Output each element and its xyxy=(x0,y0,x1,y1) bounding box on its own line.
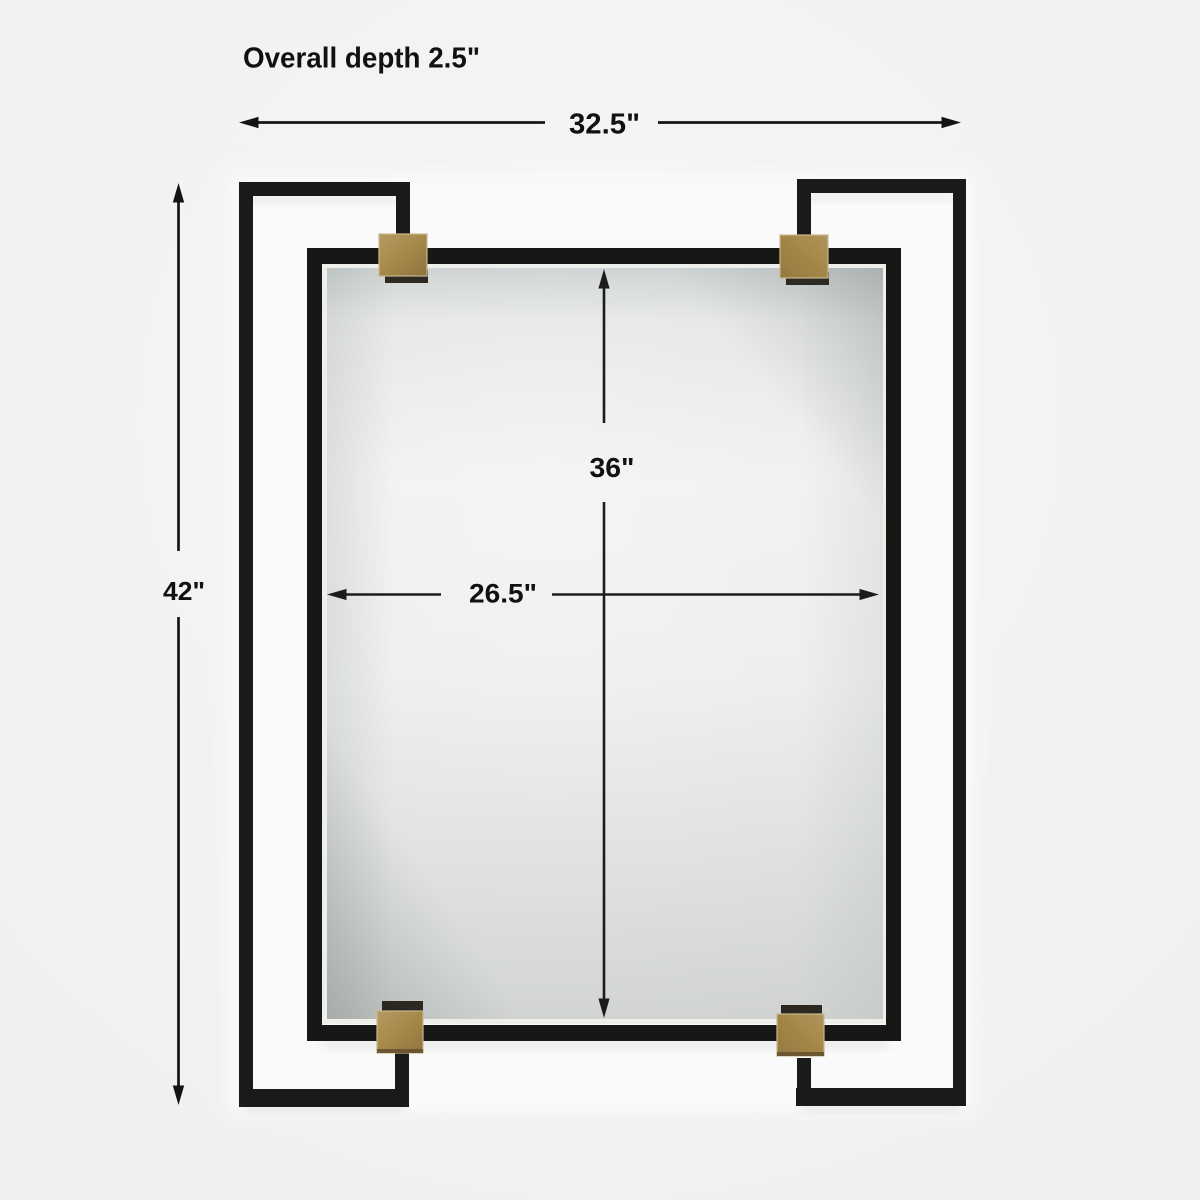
svg-text:36": 36" xyxy=(590,452,635,483)
svg-text:32.5": 32.5" xyxy=(569,109,640,141)
svg-text:42": 42" xyxy=(163,576,205,606)
svg-text:Overall depth 2.5": Overall depth 2.5" xyxy=(243,43,480,75)
svg-text:26.5": 26.5" xyxy=(469,579,537,609)
